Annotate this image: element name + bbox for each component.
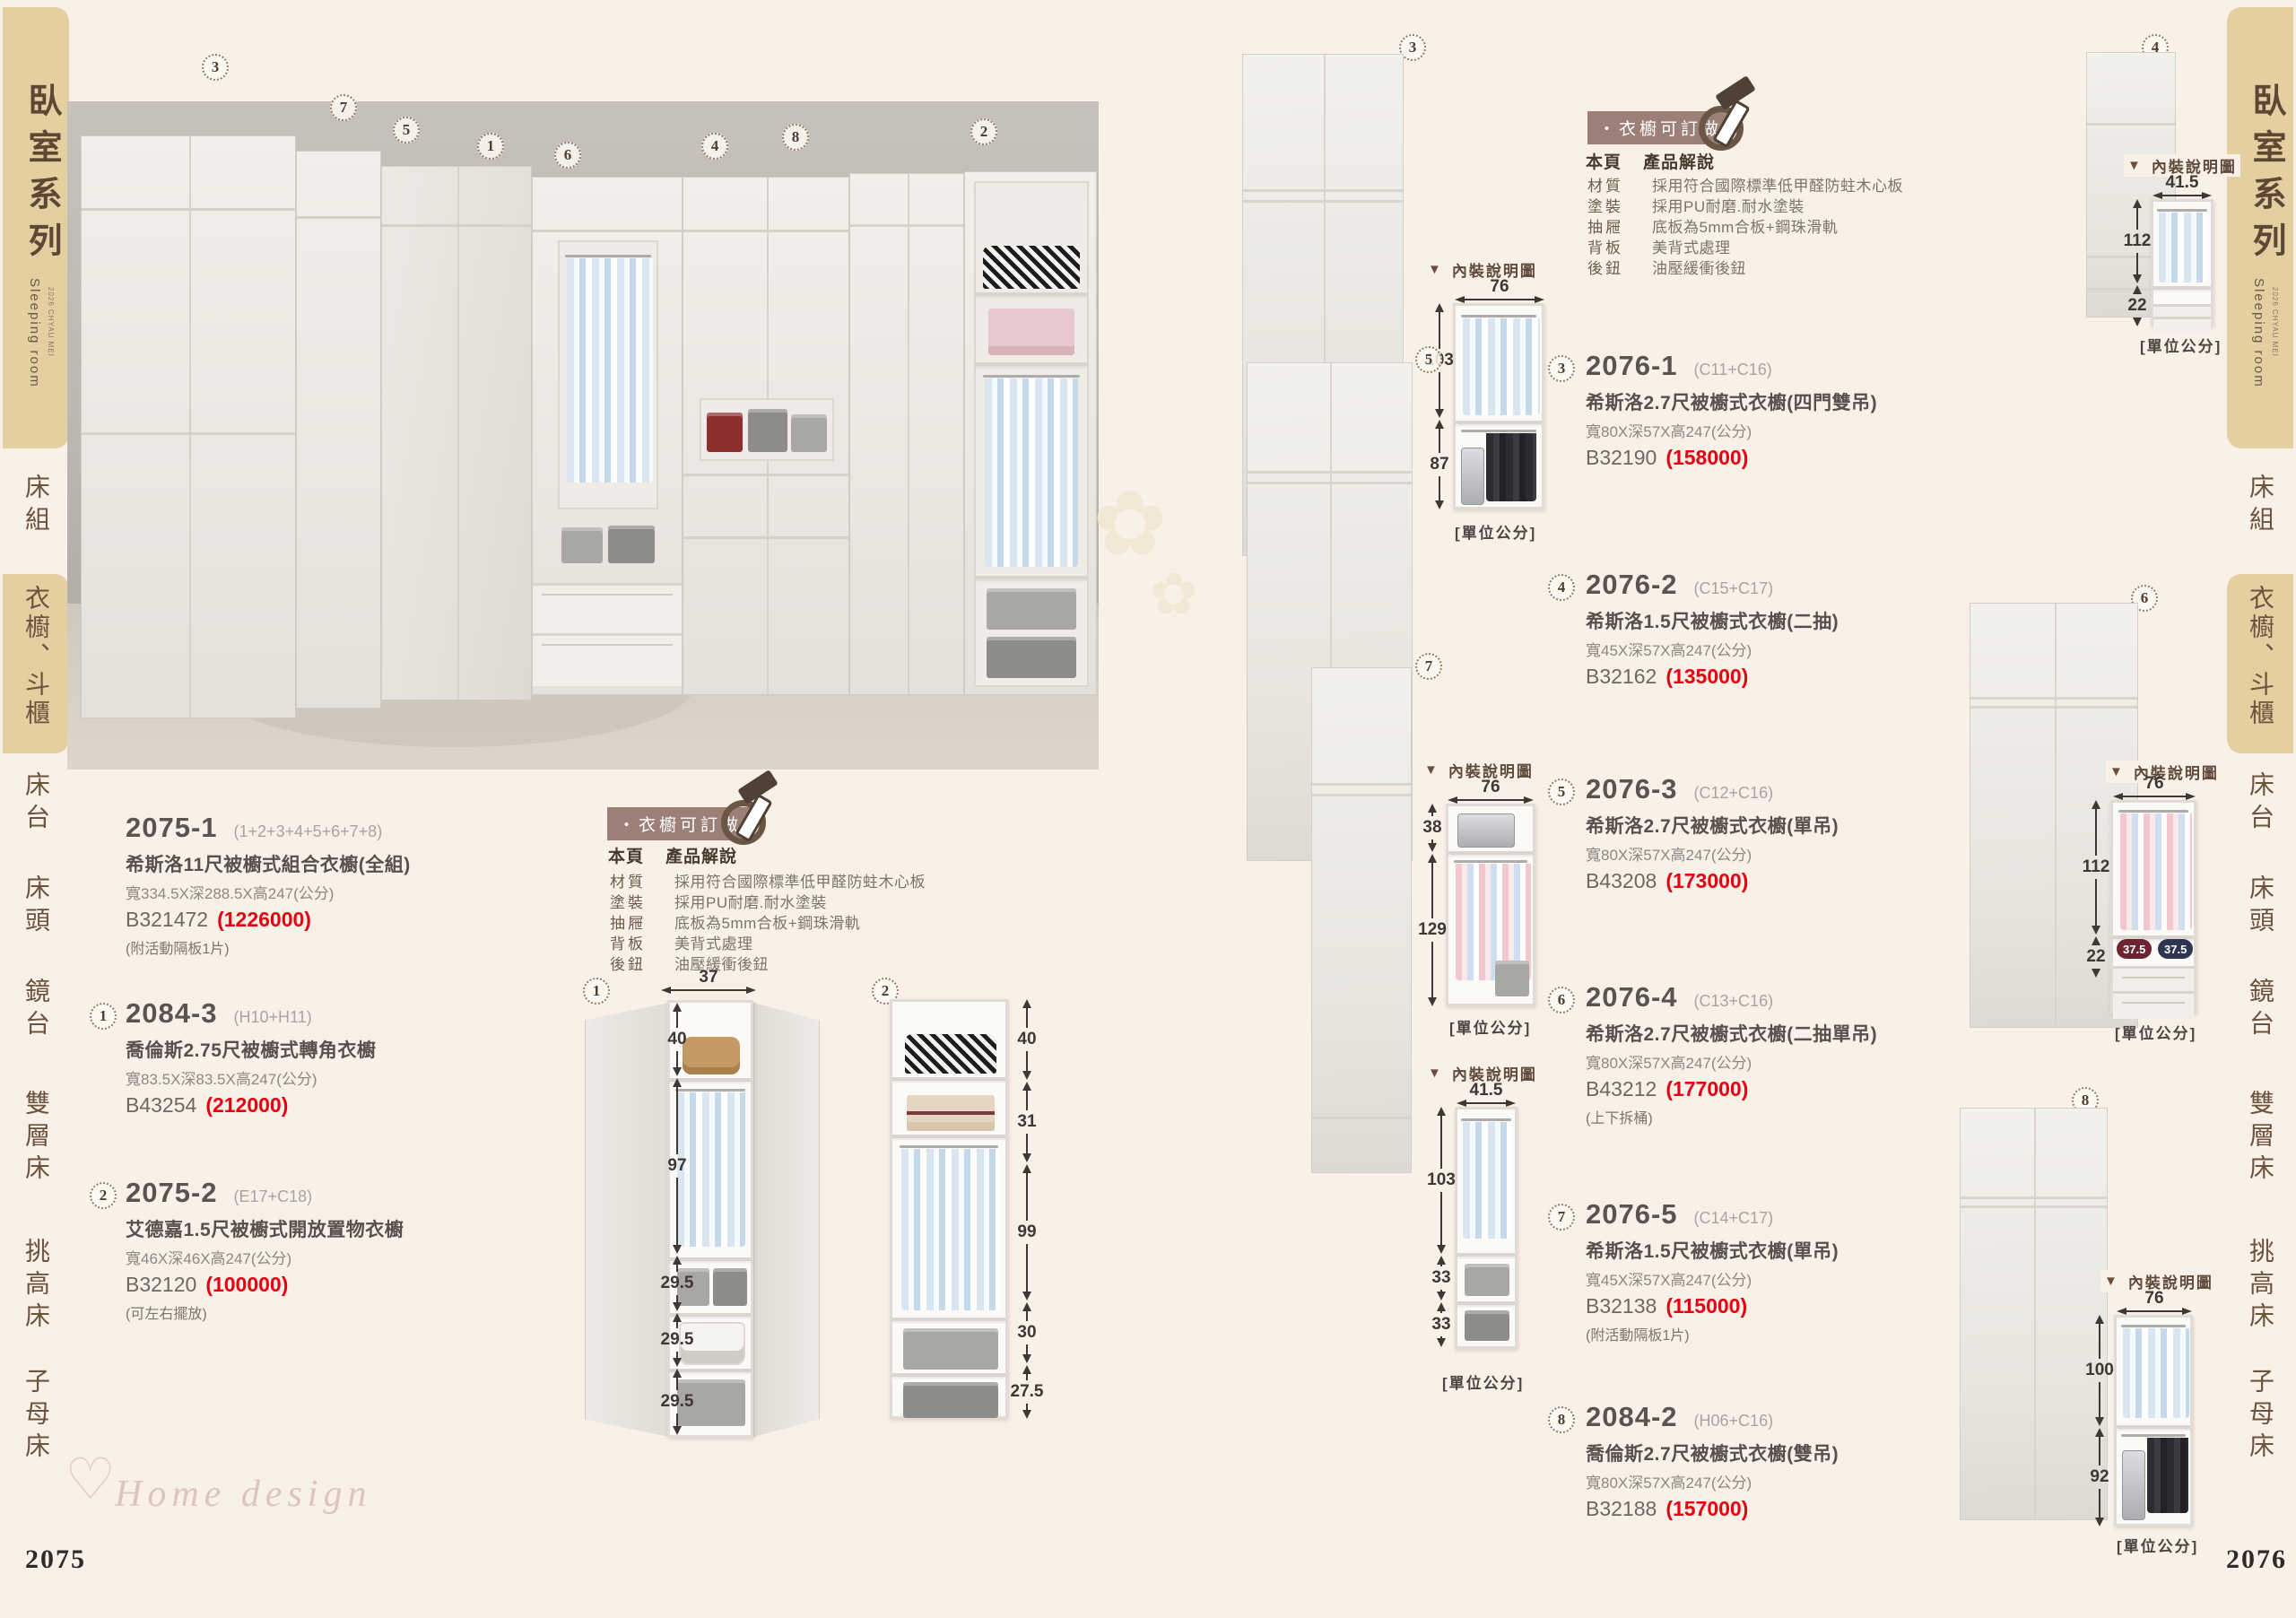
product-price: (173000) <box>1665 869 1748 893</box>
d7-body <box>1455 1107 1518 1349</box>
sidebar-item-bunkbed: 雙層床 <box>3 1090 69 1187</box>
photo-wardrobe-2 <box>296 151 381 709</box>
d8-dim-100: 100 <box>2084 1315 2115 1426</box>
photo-marker-5-r: 5 <box>1415 346 1442 373</box>
product-2076-5: 2076-5 (C14+C17) 希斯洛1.5尺被櫥式衣櫥(單吊) 寬45X深5… <box>1586 1198 1926 1344</box>
sidebar-item-headboard: 床頭 <box>3 874 69 939</box>
photo-wardrobe-left <box>81 135 296 718</box>
d7-un it: [單位公分] <box>1442 1370 1524 1393</box>
spec-header-r: 本頁產品解說 <box>1586 149 1715 173</box>
product-marker-4r: 4 <box>1548 574 1575 601</box>
d6-unit: [單位公分] <box>2115 1021 2196 1043</box>
d5-dim-129: 129 <box>1417 854 1448 1006</box>
d8-width: 76 <box>2117 1290 2192 1315</box>
product-note: (可左右擺放) <box>126 1301 466 1323</box>
product-name: 艾德嘉1.5尺被櫥式開放置物衣櫥 <box>126 1215 466 1242</box>
photo-marker-3: 3 <box>202 54 229 81</box>
diagram-marker-1: 1 <box>583 978 610 1005</box>
d5-width: 76 <box>1448 779 1534 804</box>
product-marker-2: 2 <box>90 1182 117 1209</box>
d3-width: 76 <box>1455 278 1544 303</box>
product-code: 2076-2 <box>1586 569 1678 601</box>
sidebar-item-trundlebed-r: 子母床 <box>2227 1368 2293 1465</box>
d4-width: 41.5 <box>2152 174 2212 199</box>
product-note: (附活動隔板1片) <box>1586 1323 1926 1344</box>
product-name: 希斯洛1.5尺被櫥式衣櫥(二抽) <box>1586 607 1926 634</box>
product-sku: B43208 <box>1586 869 1657 893</box>
product-marker-5r: 5 <box>1548 779 1575 805</box>
sidebar-item-wardrobe: 衣櫥、斗櫃 <box>3 585 69 728</box>
photo-marker-7-r: 7 <box>1415 653 1442 680</box>
d3-dim-87: 87 <box>1424 420 1455 509</box>
product-code: 2076-5 <box>1586 1198 1678 1231</box>
dim-29-5-b: 29.5 <box>662 1313 692 1367</box>
dim2-30: 30 <box>1012 1302 1042 1363</box>
product-sku: B32162 <box>1586 665 1657 689</box>
photo-marker-4: 4 <box>701 133 728 160</box>
product-size: 寬80X深57X高247(公分) <box>1586 842 1926 865</box>
product-marker-8r: 8 <box>1548 1406 1575 1433</box>
d8-dim-92: 92 <box>2084 1428 2115 1527</box>
d6-inner-width-right: 37.5 <box>2158 939 2193 959</box>
product-2076-3: 2076-3 (C12+C16) 希斯洛2.7尺被櫥式衣櫥(單吊) 寬80X深5… <box>1586 773 1926 893</box>
product-size: 寬45X深57X高247(公分) <box>1586 1267 1926 1290</box>
product-price: (135000) <box>1665 665 1748 689</box>
sidebar-item-trundlebed: 子母床 <box>3 1368 69 1465</box>
product-2076-2: 2076-2 (C15+C17) 希斯洛1.5尺被櫥式衣櫥(二抽) 寬45X深5… <box>1586 569 1926 689</box>
dim-width-37: 37 <box>661 969 756 994</box>
product-name: 希斯洛2.7尺被櫥式衣櫥(二抽單吊) <box>1586 1020 1926 1047</box>
right-page-number: 2076 <box>2226 1544 2287 1575</box>
dim-97: 97 <box>662 1078 692 1254</box>
product-size: 寬80X深57X高247(公分) <box>1586 1050 1926 1073</box>
product-name: 喬倫斯2.75尺被櫥式轉角衣櫥 <box>126 1036 466 1063</box>
corner-right-panel <box>753 1003 820 1437</box>
triangle-down-icon: ▼ <box>1428 262 1443 277</box>
sidebar-item-vanity-r: 鏡台 <box>2227 978 2293 1042</box>
product-marker-7r: 7 <box>1548 1204 1575 1231</box>
product-code: 2075-1 <box>126 812 218 844</box>
product-sku: B43254 <box>126 1093 196 1118</box>
series-subtitle-right: Sleeping room <box>2251 278 2266 388</box>
product-combo: (1+2+3+4+5+6+7+8) <box>234 822 383 841</box>
product-price: (177000) <box>1665 1077 1748 1101</box>
photo-open-unit <box>532 177 683 695</box>
d5-dim-38: 38 <box>1417 804 1448 852</box>
triangle-down-icon: ▼ <box>2127 158 2143 173</box>
product-marker-6r: 6 <box>1548 987 1575 1013</box>
spec-rows: 材質採用符合國際標準低甲醛防蛀木心板 塗裝採用PU耐磨.耐水塗裝 抽屜底板為5m… <box>610 872 926 975</box>
photo-corner-unit <box>381 166 532 700</box>
dim2-40: 40 <box>1012 999 1042 1080</box>
product-price: (212000) <box>205 1093 288 1118</box>
product-name: 希斯洛2.7尺被櫥式衣櫥(四門雙吊) <box>1586 388 1926 415</box>
product-price: (115000) <box>1665 1294 1747 1318</box>
series-subtitle: Sleeping room <box>27 278 42 388</box>
product-2084-2: 2084-2 (H06+C16) 喬倫斯2.7尺被櫥式衣櫥(雙吊) 寬80X深5… <box>1586 1401 1926 1521</box>
d4-dim-112: 112 <box>2122 199 2152 283</box>
sidebar-item-bunkbed-r: 雙層床 <box>2227 1090 2293 1187</box>
product-combo: (C13+C16) <box>1694 992 1774 1011</box>
series-title: 臥室系列 <box>17 83 66 269</box>
dim2-31: 31 <box>1012 1082 1042 1162</box>
watermark-text: Home design <box>115 1473 371 1516</box>
product-note: (附活動隔板1片) <box>126 936 466 958</box>
product-sku: B32120 <box>126 1273 196 1297</box>
sidebar-item-headboard-r: 床頭 <box>2227 874 2293 939</box>
hammer-icon <box>716 777 784 845</box>
dim2-99: 99 <box>1012 1164 1042 1300</box>
product-code: 2076-3 <box>1586 773 1678 805</box>
product-combo: (C12+C16) <box>1694 784 1774 803</box>
sidebar-item-bedframe: 床台 <box>3 771 69 836</box>
product-price: (100000) <box>205 1273 288 1297</box>
left-page-number: 2075 <box>25 1544 86 1575</box>
d4-body <box>2151 199 2213 326</box>
product-combo: (C11+C16) <box>1694 361 1772 379</box>
triangle-down-icon: ▼ <box>1424 762 1439 778</box>
watermark-heart-icon: ♡ <box>65 1446 116 1513</box>
sidebar-item-loftbed: 挑高床 <box>3 1238 69 1335</box>
product-code: 2076-1 <box>1586 350 1678 382</box>
d8-body <box>2114 1315 2193 1527</box>
d7-dim-103: 103 <box>1426 1107 1457 1254</box>
d6-width: 76 <box>2113 775 2196 800</box>
photo-marker-7: 7 <box>330 94 357 121</box>
product-marker-1: 1 <box>90 1003 117 1030</box>
dim-29-5-c: 29.5 <box>662 1369 692 1435</box>
sidebar-item-vanity: 鏡台 <box>3 978 69 1042</box>
product-size: 寬334.5X深288.5X高247(公分) <box>126 881 466 903</box>
triangle-down-icon: ▼ <box>1428 1066 1443 1081</box>
dim-29-5-a: 29.5 <box>662 1256 692 1311</box>
product-size: 寬80X深57X高247(公分) <box>1586 1470 1926 1492</box>
product-combo: (H10+H11) <box>234 1008 312 1027</box>
photo-marker-1: 1 <box>477 133 504 160</box>
spec-header: 本頁產品解說 <box>608 843 737 867</box>
product-2084-3: 2084-3 (H10+H11) 喬倫斯2.75尺被櫥式轉角衣櫥 寬83.5X深… <box>126 997 466 1118</box>
sidebar-item-bedframe-r: 床台 <box>2227 771 2293 836</box>
flower-watermark-icon-small: ✿ <box>1150 561 1198 628</box>
series-note-right: 2026 CHYAU MEI <box>2271 287 2279 357</box>
dim2-27-5: 27.5 <box>1012 1365 1042 1419</box>
product-combo: (C14+C17) <box>1694 1209 1774 1228</box>
photo-unit-doors <box>849 173 964 695</box>
photo-marker-5: 5 <box>393 117 420 144</box>
product-code: 2075-2 <box>126 1177 218 1209</box>
product-price: (1226000) <box>217 908 311 932</box>
triangle-down-icon: ▼ <box>2104 1274 2119 1289</box>
product-size: 寬80X深57X高247(公分) <box>1586 419 1926 441</box>
product-sku: B43212 <box>1586 1077 1657 1101</box>
photo-marker-8: 8 <box>782 124 809 151</box>
product-price: (157000) <box>1665 1497 1748 1521</box>
product-code: 2076-4 <box>1586 981 1678 1013</box>
spec-rows-r: 材質採用符合國際標準低甲醛防蛀木心板 塗裝採用PU耐磨.耐水塗裝 抽屜底板為5m… <box>1587 176 1903 279</box>
d3-unit: [單位公分] <box>1455 520 1536 543</box>
wardrobe-photo-7 <box>1311 667 1412 1173</box>
product-size: 寬83.5X深83.5X高247(公分) <box>126 1066 466 1089</box>
product-name: 喬倫斯2.7尺被櫥式衣櫥(雙吊) <box>1586 1440 1926 1466</box>
d6-dim-112: 112 <box>2081 800 2111 935</box>
product-sku: B32190 <box>1586 446 1657 470</box>
d7-width: 41.5 <box>1457 1082 1516 1107</box>
d4-dim-22: 22 <box>2122 285 2152 326</box>
product-size: 寬46X深46X高247(公分) <box>126 1246 466 1268</box>
d5-unit: [單位公分] <box>1449 1015 1531 1038</box>
series-note: 2026 CHYAU MEI <box>47 287 55 357</box>
product-code: 2084-3 <box>126 997 218 1030</box>
room-photo <box>67 101 1099 770</box>
d6-dim-22: 22 <box>2081 936 2111 969</box>
product-combo: (H06+C16) <box>1694 1412 1774 1431</box>
product-2075-1: 2075-1 (1+2+3+4+5+6+7+8) 希斯洛11尺被櫥式組合衣櫥(全… <box>126 812 466 958</box>
product-2076-4: 2076-4 (C13+C16) 希斯洛2.7尺被櫥式衣櫥(二抽單吊) 寬80X… <box>1586 981 1926 1127</box>
product-name: 希斯洛2.7尺被櫥式衣櫥(單吊) <box>1586 812 1926 839</box>
photo-marker-2: 2 <box>970 118 997 145</box>
product-combo: (E17+C18) <box>234 1187 313 1206</box>
dim-40: 40 <box>662 1003 692 1076</box>
product-name: 希斯洛11尺被櫥式組合衣櫥(全組) <box>126 850 466 877</box>
photo-unit-niche <box>683 177 849 695</box>
d4-unit: [單位公分] <box>2140 334 2222 356</box>
hammer-icon-r <box>1693 83 1761 151</box>
sidebar-item-bedset: 床組 <box>3 474 69 538</box>
d6-body: 37.5 37.5 <box>2110 800 2196 1013</box>
d8-unit: [單位公分] <box>2117 1534 2198 1556</box>
product-sku: B32138 <box>1586 1294 1657 1318</box>
corner-left-panel <box>585 1003 669 1437</box>
product-sku: B321472 <box>126 908 208 932</box>
product-marker-3r: 3 <box>1548 355 1575 382</box>
product-2075-2: 2075-2 (E17+C18) 艾德嘉1.5尺被櫥式開放置物衣櫥 寬46X深4… <box>126 1177 466 1323</box>
photo-open-column <box>964 171 1097 695</box>
product-size: 寬45X深57X高247(公分) <box>1586 638 1926 660</box>
product-sku: B32188 <box>1586 1497 1657 1521</box>
product-note: (上下拆桶) <box>1586 1106 1926 1127</box>
sidebar-item-loftbed-r: 挑高床 <box>2227 1238 2293 1335</box>
d7-dim-33a: 33 <box>1426 1256 1457 1300</box>
product-combo: (C15+C17) <box>1694 579 1774 598</box>
sidebar-item-wardrobe-r: 衣櫥、斗櫃 <box>2227 585 2293 728</box>
product-2076-1: 2076-1 (C11+C16) 希斯洛2.7尺被櫥式衣櫥(四門雙吊) 寬80X… <box>1586 350 1926 470</box>
product-name: 希斯洛1.5尺被櫥式衣櫥(單吊) <box>1586 1237 1926 1264</box>
sidebar-item-bedset-r: 床組 <box>2227 474 2293 538</box>
d3-body <box>1453 303 1544 509</box>
d5-body <box>1446 804 1535 1006</box>
open-column-body <box>890 999 1008 1419</box>
series-title-right: 臥室系列 <box>2241 83 2291 269</box>
product-price: (158000) <box>1665 446 1748 470</box>
product-code: 2084-2 <box>1586 1401 1678 1433</box>
d6-inner-width-left: 37.5 <box>2117 939 2152 959</box>
d7-dim-33b: 33 <box>1426 1302 1457 1347</box>
photo-marker-6: 6 <box>554 142 581 169</box>
